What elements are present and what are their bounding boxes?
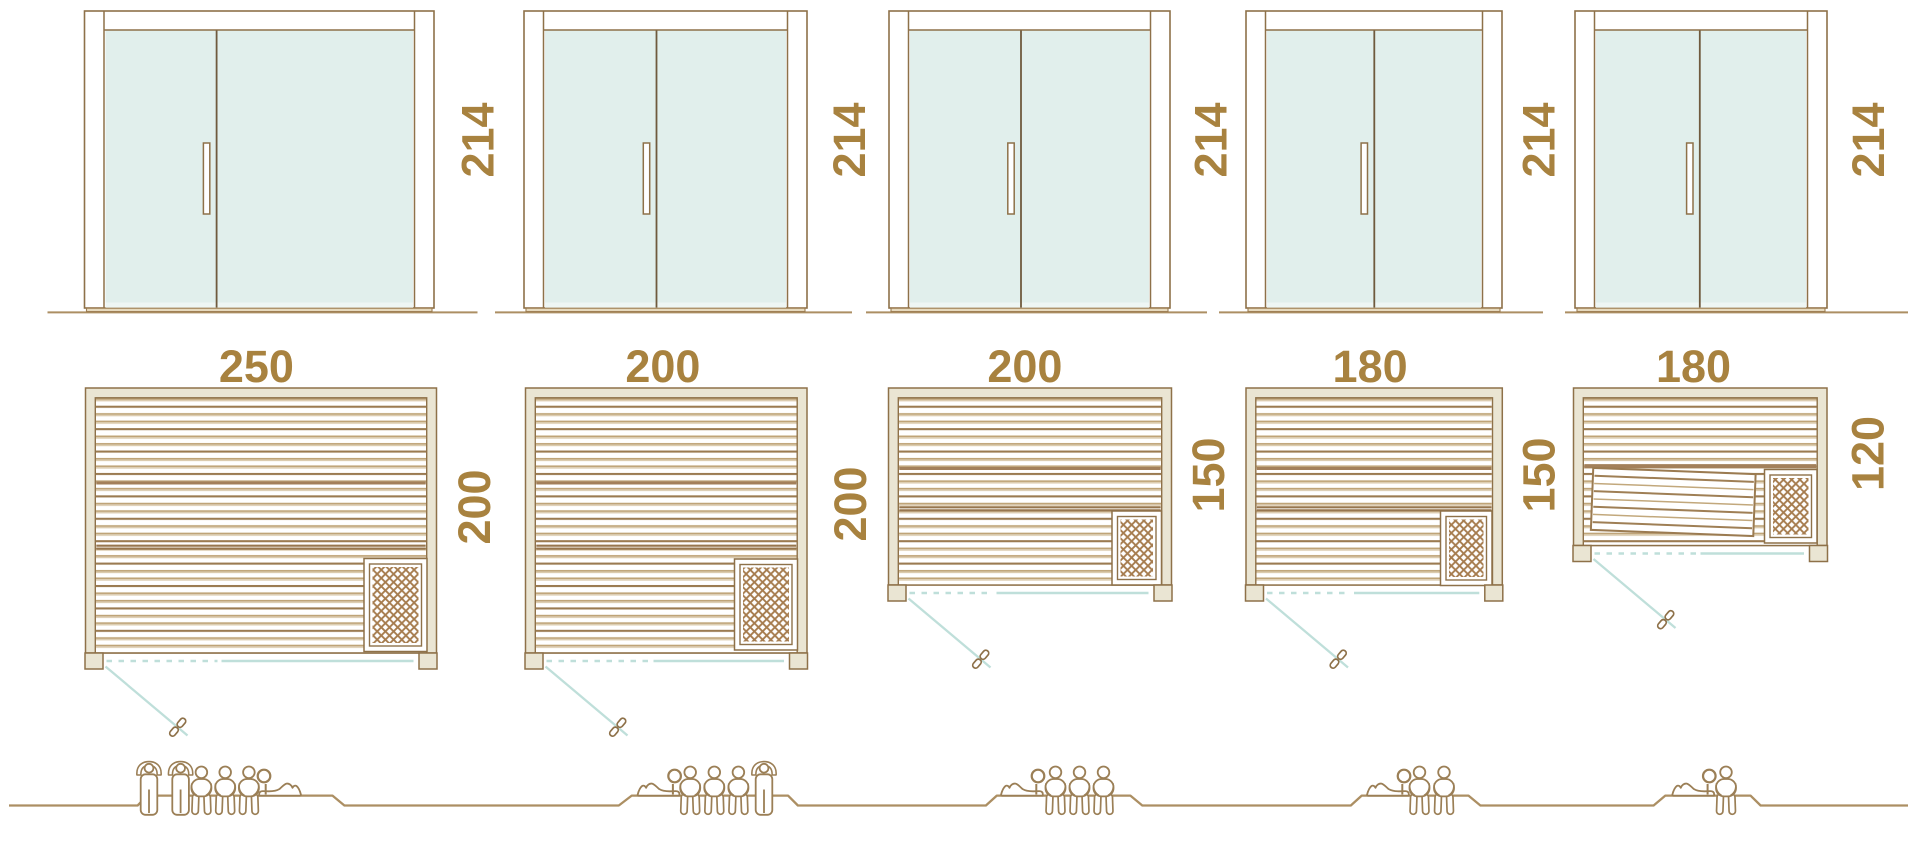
svg-text:120: 120 [1843,416,1894,491]
svg-text:214: 214 [1514,102,1565,177]
svg-text:180: 180 [1333,341,1408,392]
svg-text:250: 250 [219,341,294,392]
svg-text:214: 214 [824,102,875,177]
svg-text:214: 214 [453,102,504,177]
svg-text:200: 200 [825,466,876,541]
svg-text:150: 150 [1183,437,1234,512]
svg-text:200: 200 [449,469,500,544]
svg-text:150: 150 [1514,437,1565,512]
svg-text:200: 200 [987,341,1062,392]
svg-text:180: 180 [1656,341,1731,392]
svg-text:214: 214 [1843,102,1894,177]
svg-text:200: 200 [625,341,700,392]
svg-text:214: 214 [1186,102,1237,177]
